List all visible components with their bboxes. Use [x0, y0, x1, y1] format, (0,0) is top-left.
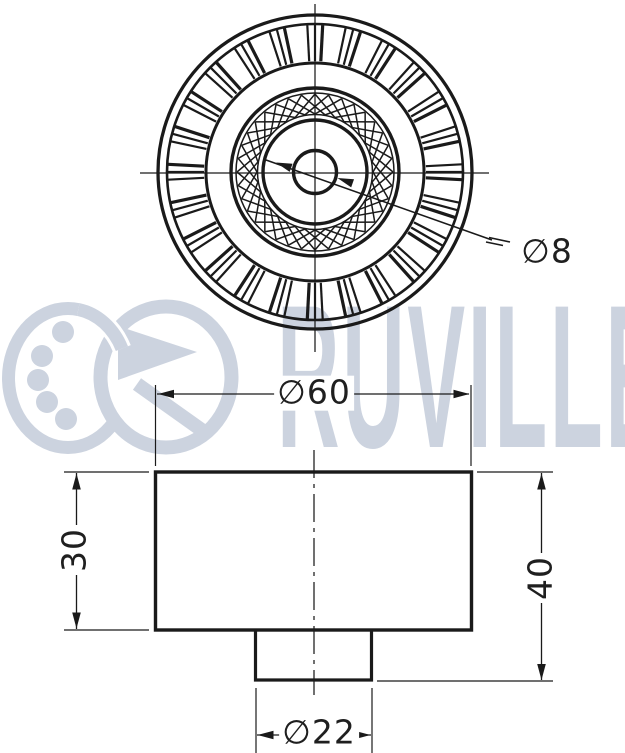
logo-ball [27, 369, 49, 391]
tooth-line [307, 25, 309, 61]
hatch-line [278, 99, 289, 128]
logo-ball [36, 391, 58, 413]
hatch-line [278, 216, 289, 245]
tooth-line [414, 222, 446, 238]
technical-drawing-page: RUVILLE ∅60 ∅8 ∅22 30 40 [0, 0, 625, 753]
tooth-line [168, 164, 204, 166]
bore-leader-tail [486, 242, 503, 246]
tooth-line [168, 178, 204, 180]
hatch-line [342, 216, 353, 245]
tooth-line [248, 41, 264, 73]
hatch-line [242, 135, 271, 146]
dim-bore-diameter-label: ∅8 [518, 235, 576, 270]
tooth-line [426, 178, 462, 180]
dim-hub-diameter-label: ∅22 [279, 716, 359, 751]
tooth-line [321, 25, 323, 61]
tooth-line [414, 105, 446, 121]
tooth-line [184, 105, 216, 121]
dim-body-width-label: 30 [58, 525, 93, 575]
tooth-line [365, 41, 381, 73]
dim-arrow [258, 731, 274, 740]
dim-overall-width-label: 40 [524, 553, 559, 603]
logo-ball [52, 321, 74, 343]
tooth-line [184, 222, 216, 238]
tooth-line [426, 164, 462, 166]
dim-arrow [72, 613, 81, 629]
hatch-line [359, 199, 388, 210]
tooth-line [307, 283, 309, 319]
dim-arrow [72, 474, 81, 490]
tooth-line [248, 271, 264, 303]
hatch-line [242, 199, 271, 210]
bore-leader-tail [489, 238, 510, 243]
brand-logo-icon [9, 307, 232, 448]
dim-arrow [537, 664, 546, 680]
dim-outer-diameter-label: ∅60 [274, 376, 354, 411]
bore-arrow [276, 163, 293, 172]
logo-ball [55, 408, 77, 430]
hatch-line [359, 135, 388, 146]
logo-ball [31, 345, 53, 367]
hatch-line [342, 99, 353, 128]
